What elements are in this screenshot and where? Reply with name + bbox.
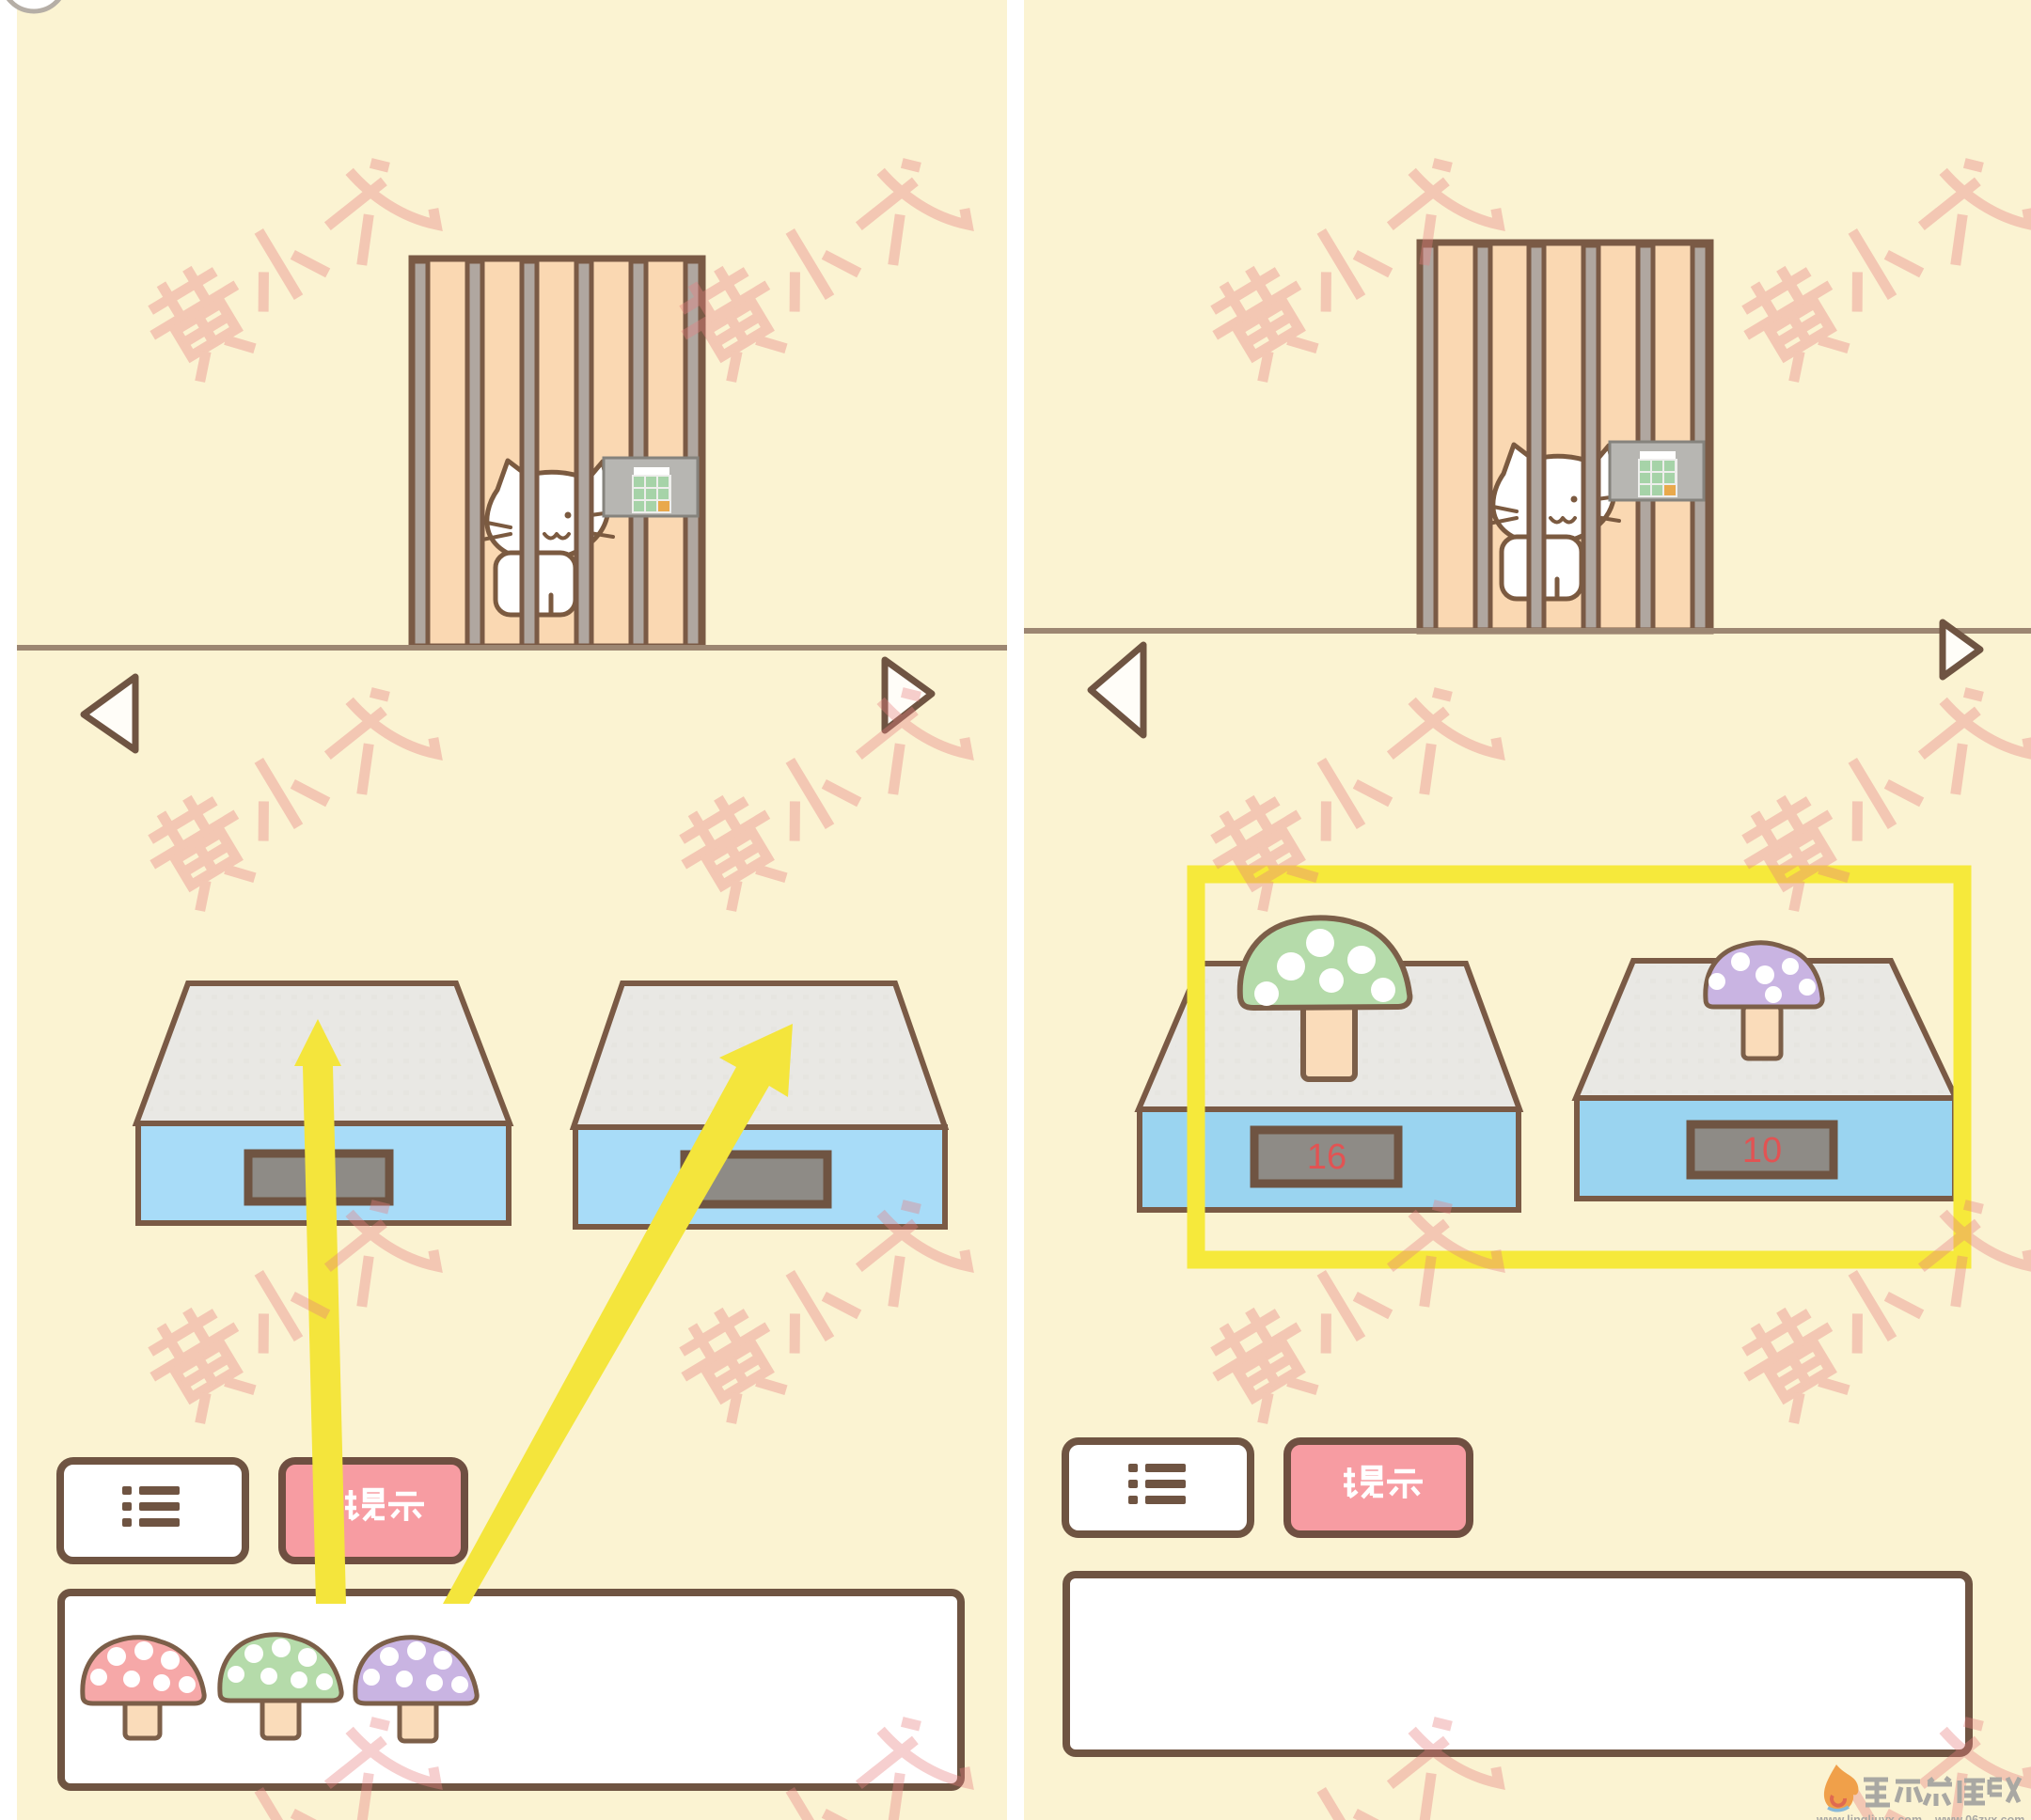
svg-text:10: 10 bbox=[1742, 1131, 1782, 1170]
svg-text:www.lingliuyx.com www.06zyx: www.lingliuyx.com www.06zyx.com bbox=[1816, 1813, 2024, 1820]
svg-text:16: 16 bbox=[1307, 1137, 1346, 1177]
